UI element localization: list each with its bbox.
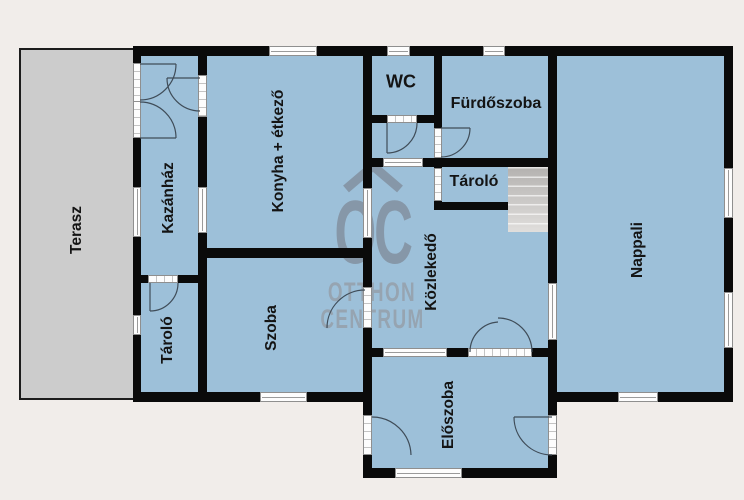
door-arc-entrance	[514, 417, 552, 455]
room-label-tarolo-also: Tároló	[159, 316, 177, 363]
room-label-kazanhaz: Kazánház	[160, 162, 178, 234]
room-label-furdoszoba: Fürdőszoba	[451, 95, 542, 113]
door-arc-wc	[387, 123, 417, 153]
room-label-nappali: Nappali	[629, 222, 647, 278]
floorplan-canvas: OC OTTHON CENTRUM	[0, 0, 744, 500]
room-label-szoba: Szoba	[263, 305, 281, 351]
door-arc-eloszoba-left	[372, 417, 411, 455]
room-label-terasz: Terasz	[68, 206, 86, 254]
door-arc-terrace-upper	[140, 64, 176, 100]
door-arc-kazanhaz-konyha	[167, 78, 200, 111]
door-arc-double-left	[470, 322, 498, 352]
door-arc-terrace-lower	[140, 102, 176, 138]
door-arc-tarolo-also	[150, 283, 178, 311]
room-label-wc: WC	[386, 72, 416, 93]
door-arc-szoba	[327, 290, 365, 328]
door-arc-double-right	[498, 318, 532, 352]
room-label-kozlekedo: Közlekedő	[423, 233, 441, 311]
room-label-konyha: Konyha + étkező	[270, 90, 288, 213]
room-label-eloszoba: Előszoba	[440, 381, 458, 449]
door-arc-furdoszoba	[441, 128, 470, 157]
room-label-tarolo-felso: Tároló	[450, 173, 499, 191]
